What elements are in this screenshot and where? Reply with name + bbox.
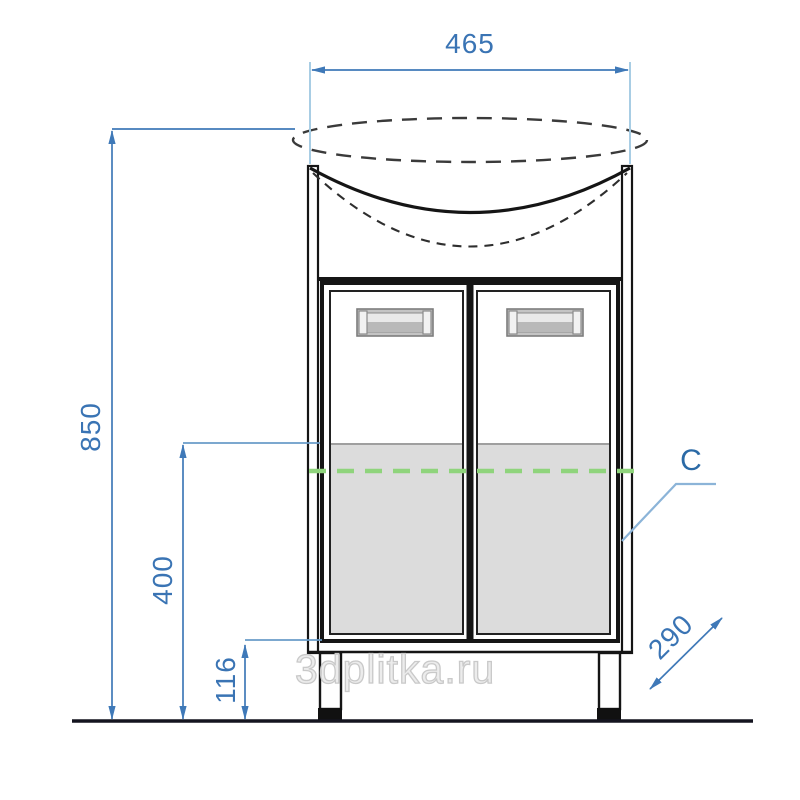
left-foot <box>318 708 342 720</box>
sink-basin-hidden-curve <box>313 173 627 247</box>
technical-drawing-canvas: 465 850 400 116 290 C 3dplitka.ru <box>0 0 800 800</box>
left-door-handle <box>357 309 433 336</box>
dimension-mid-height-label: 400 <box>147 555 179 605</box>
sink-front-curve <box>310 168 630 213</box>
cabinet-outline <box>72 118 753 721</box>
watermark-text: 3dplitka.ru <box>295 646 495 693</box>
section-mark-label: C <box>680 444 702 478</box>
right-door-handle <box>507 309 583 336</box>
cabinet-left-side-panel <box>308 166 318 653</box>
right-foot <box>597 708 621 720</box>
dimension-total-height-label: 850 <box>75 402 107 452</box>
right-leg <box>599 653 620 709</box>
cabinet-right-side-panel <box>622 166 632 653</box>
section-leader <box>622 484 716 541</box>
dimension-plinth-height-label: 116 <box>210 656 242 704</box>
sink-rim-dashed-ellipse <box>293 118 647 162</box>
dimension-width-label: 465 <box>445 28 495 60</box>
